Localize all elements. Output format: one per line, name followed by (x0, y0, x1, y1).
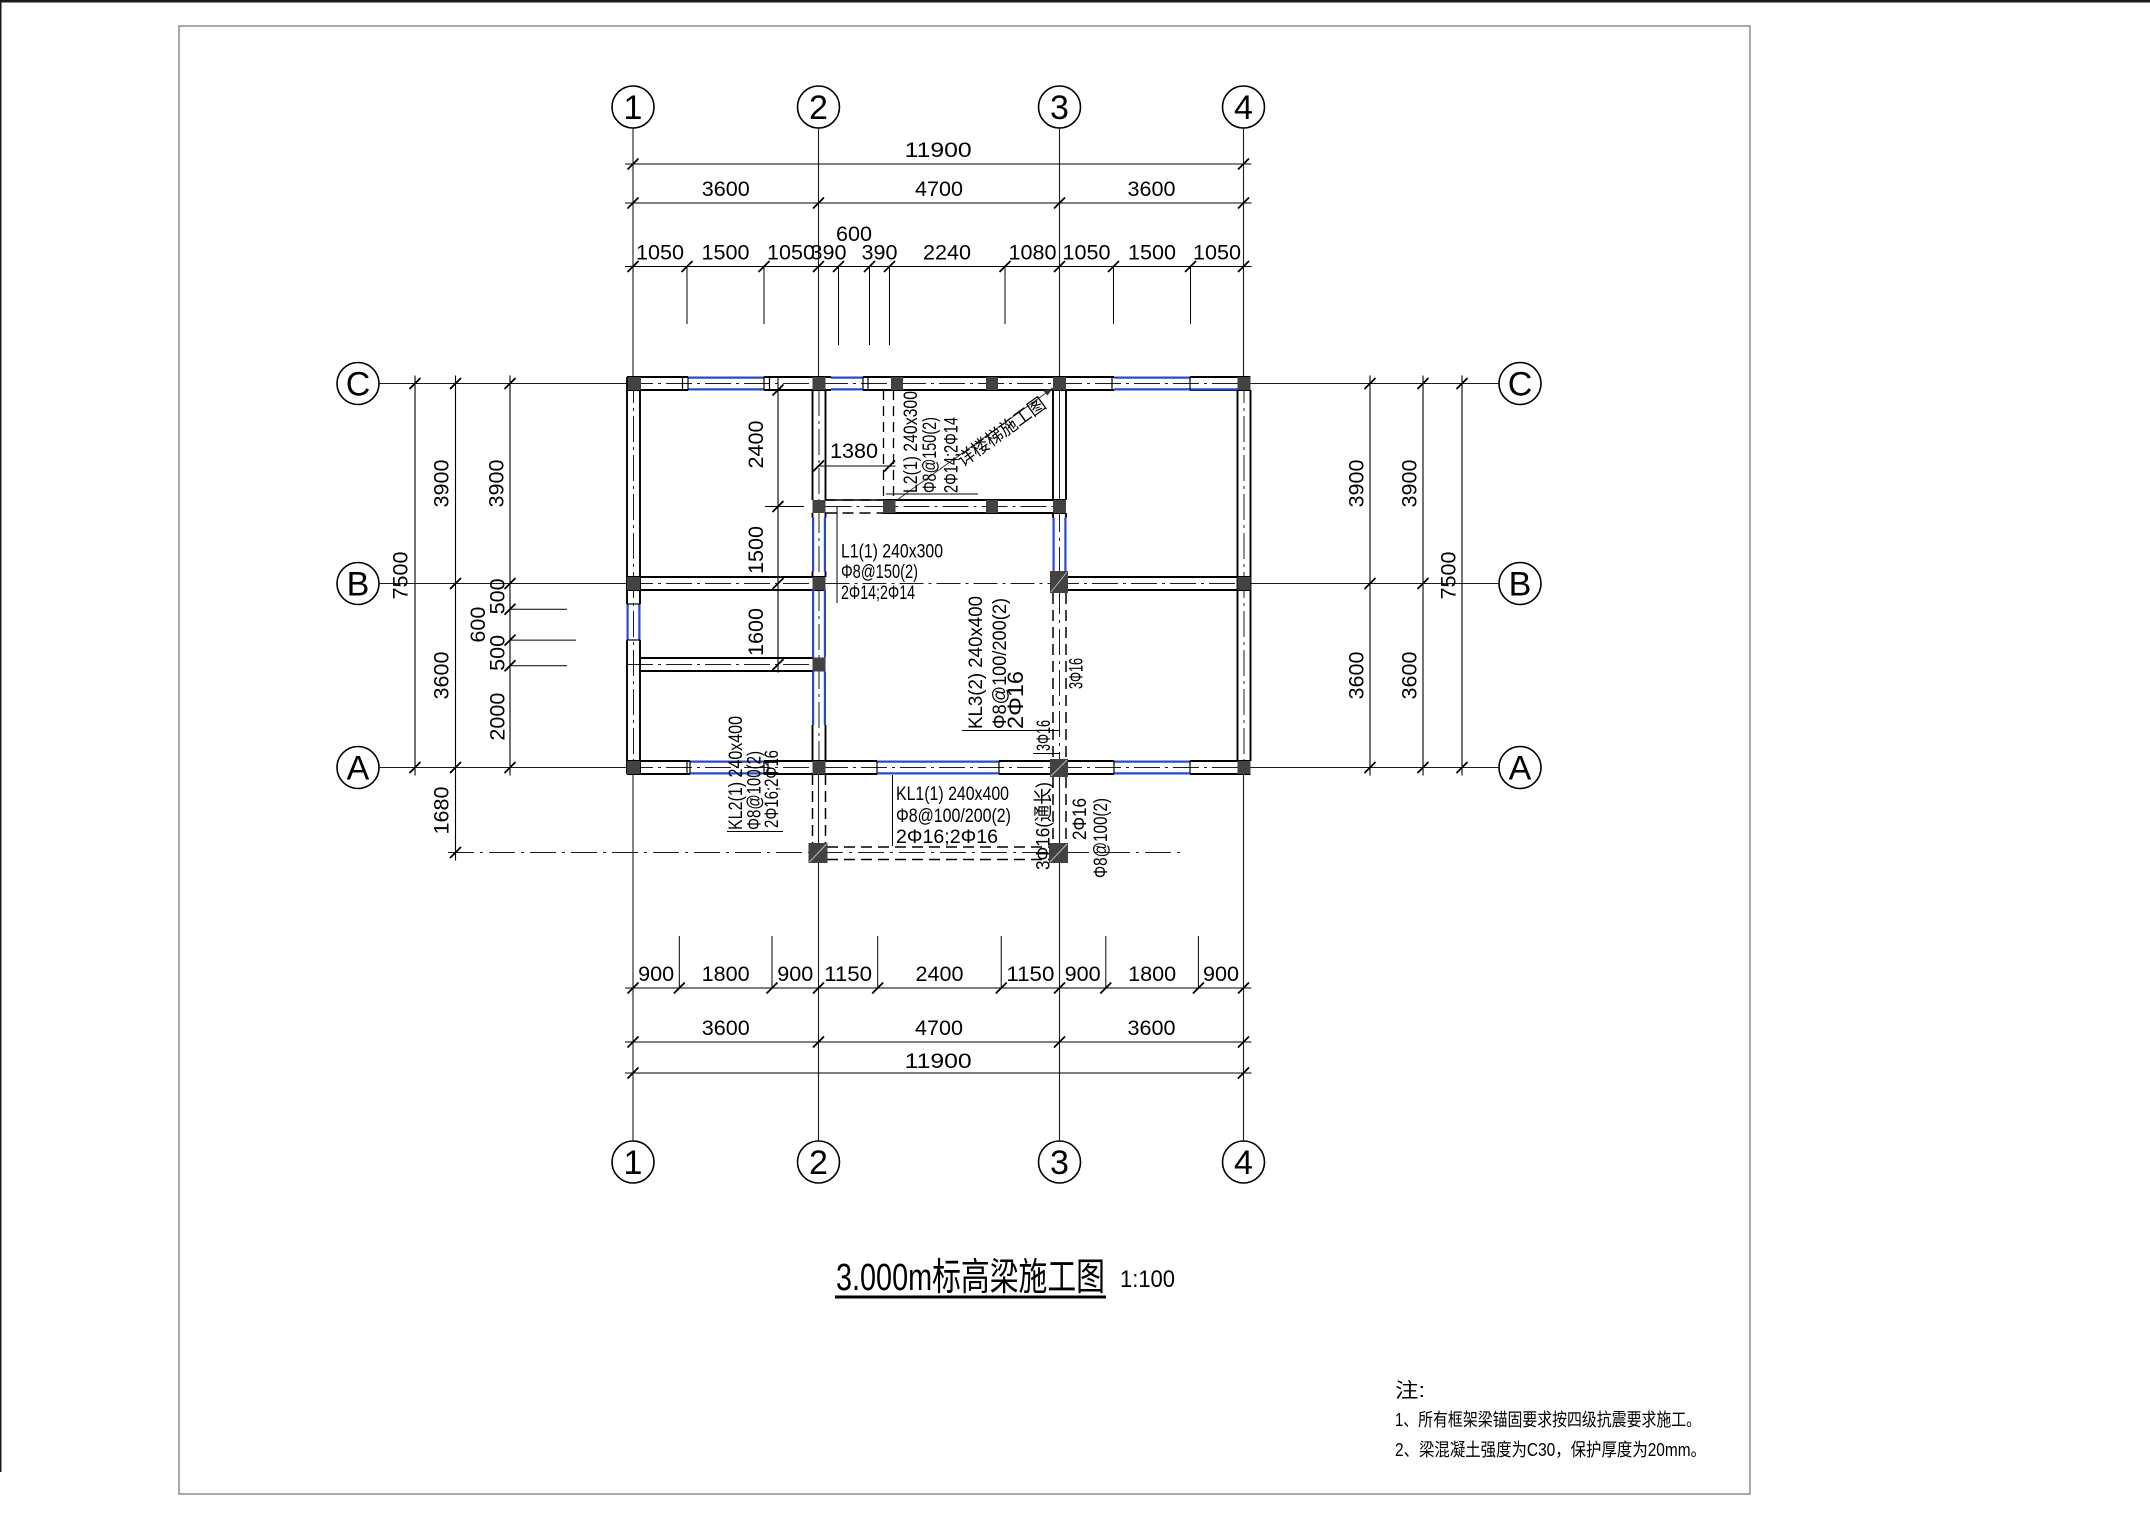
svg-text:1050: 1050 (1193, 242, 1241, 265)
svg-text:4: 4 (1234, 89, 1253, 127)
svg-text:3600: 3600 (1128, 178, 1176, 201)
svg-text:2Φ14;2Φ14: 2Φ14;2Φ14 (841, 583, 915, 604)
svg-text:1080: 1080 (1009, 242, 1057, 265)
svg-text:1050: 1050 (636, 242, 684, 265)
svg-text:3600: 3600 (1346, 652, 1369, 700)
svg-text:7500: 7500 (390, 552, 413, 600)
svg-text:C: C (346, 366, 371, 404)
svg-text:2Φ16;2Φ16: 2Φ16;2Φ16 (896, 827, 998, 848)
svg-text:L1(1) 240x300: L1(1) 240x300 (841, 542, 943, 563)
svg-text:4700: 4700 (915, 178, 963, 201)
svg-text:3Φ16(通长): 3Φ16(通长) (1033, 782, 1055, 870)
svg-text:2400: 2400 (916, 963, 964, 986)
svg-text:1500: 1500 (1128, 242, 1176, 265)
svg-text:3900: 3900 (431, 460, 454, 508)
svg-text:11900: 11900 (905, 1050, 972, 1073)
svg-text:2Φ16;2Φ16: 2Φ16;2Φ16 (762, 750, 783, 828)
svg-text:1600: 1600 (745, 608, 768, 656)
svg-text:900: 900 (1065, 963, 1101, 986)
svg-text:2400: 2400 (745, 421, 768, 469)
svg-text:KL3(2) 240x400: KL3(2) 240x400 (966, 596, 987, 729)
svg-text:1800: 1800 (702, 963, 750, 986)
svg-text:1:100: 1:100 (1120, 1266, 1175, 1293)
svg-text:2Φ16: 2Φ16 (1003, 671, 1028, 729)
svg-text:Φ8@100/200(2): Φ8@100/200(2) (896, 806, 1011, 827)
svg-text:7500: 7500 (1438, 552, 1461, 600)
svg-text:3600: 3600 (1399, 652, 1422, 700)
svg-text:2000: 2000 (487, 693, 510, 741)
svg-text:3.000m标高梁施工图: 3.000m标高梁施工图 (836, 1257, 1105, 1299)
svg-text:1500: 1500 (745, 526, 768, 574)
svg-text:1050: 1050 (767, 242, 815, 265)
svg-text:1680: 1680 (431, 787, 454, 835)
svg-text:1050: 1050 (1063, 242, 1111, 265)
svg-text:3900: 3900 (1399, 460, 1422, 508)
svg-text:Φ8@100(2): Φ8@100(2) (1091, 798, 1112, 878)
svg-text:3600: 3600 (702, 1017, 750, 1040)
svg-text:L2(1) 240x300: L2(1) 240x300 (901, 391, 922, 493)
svg-text:1150: 1150 (824, 963, 872, 986)
svg-text:900: 900 (638, 963, 674, 986)
svg-text:2Φ16: 2Φ16 (1070, 798, 1091, 840)
svg-text:2240: 2240 (923, 242, 971, 265)
svg-text:4: 4 (1234, 1144, 1253, 1182)
svg-text:3900: 3900 (486, 460, 509, 508)
svg-text:4700: 4700 (915, 1017, 963, 1040)
svg-text:3600: 3600 (431, 652, 454, 700)
svg-text:600: 600 (836, 223, 872, 246)
svg-text:KL1(1) 240x400: KL1(1) 240x400 (896, 784, 1009, 805)
svg-text:1800: 1800 (1128, 963, 1176, 986)
svg-text:1500: 1500 (702, 242, 750, 265)
svg-text:A: A (1509, 750, 1532, 788)
svg-text:B: B (347, 566, 370, 604)
svg-text:3600: 3600 (1128, 1017, 1176, 1040)
svg-text:3900: 3900 (1346, 460, 1369, 508)
svg-text:2: 2 (809, 1144, 828, 1182)
svg-text:1: 1 (624, 89, 643, 127)
svg-text:1380: 1380 (830, 440, 878, 463)
svg-text:2Φ14;2Φ14: 2Φ14;2Φ14 (942, 417, 963, 493)
svg-text:2: 2 (809, 89, 828, 127)
svg-text:B: B (1509, 566, 1532, 604)
svg-text:11900: 11900 (905, 139, 972, 162)
svg-text:Φ8@150(2): Φ8@150(2) (841, 562, 918, 583)
svg-text:3: 3 (1050, 89, 1069, 127)
svg-text:2、梁混凝土强度为C30，保护厚度为20mm。: 2、梁混凝土强度为C30，保护厚度为20mm。 (1395, 1440, 1706, 1460)
svg-text:注:: 注: (1395, 1379, 1425, 1402)
svg-text:1: 1 (624, 1144, 643, 1182)
svg-text:Φ8@150(2): Φ8@150(2) (920, 417, 941, 493)
svg-text:A: A (347, 750, 370, 788)
svg-text:3Φ16: 3Φ16 (1034, 720, 1055, 751)
svg-text:500: 500 (487, 635, 510, 671)
svg-text:3600: 3600 (702, 178, 750, 201)
svg-text:900: 900 (1203, 963, 1239, 986)
svg-text:1、所有框架梁锚固要求按四级抗震要求施工。: 1、所有框架梁锚固要求按四级抗震要求施工。 (1395, 1410, 1701, 1430)
svg-text:3: 3 (1050, 1144, 1069, 1182)
svg-text:900: 900 (777, 963, 813, 986)
svg-text:3Φ16: 3Φ16 (1067, 658, 1088, 689)
svg-text:1150: 1150 (1006, 963, 1054, 986)
svg-text:C: C (1508, 366, 1533, 404)
